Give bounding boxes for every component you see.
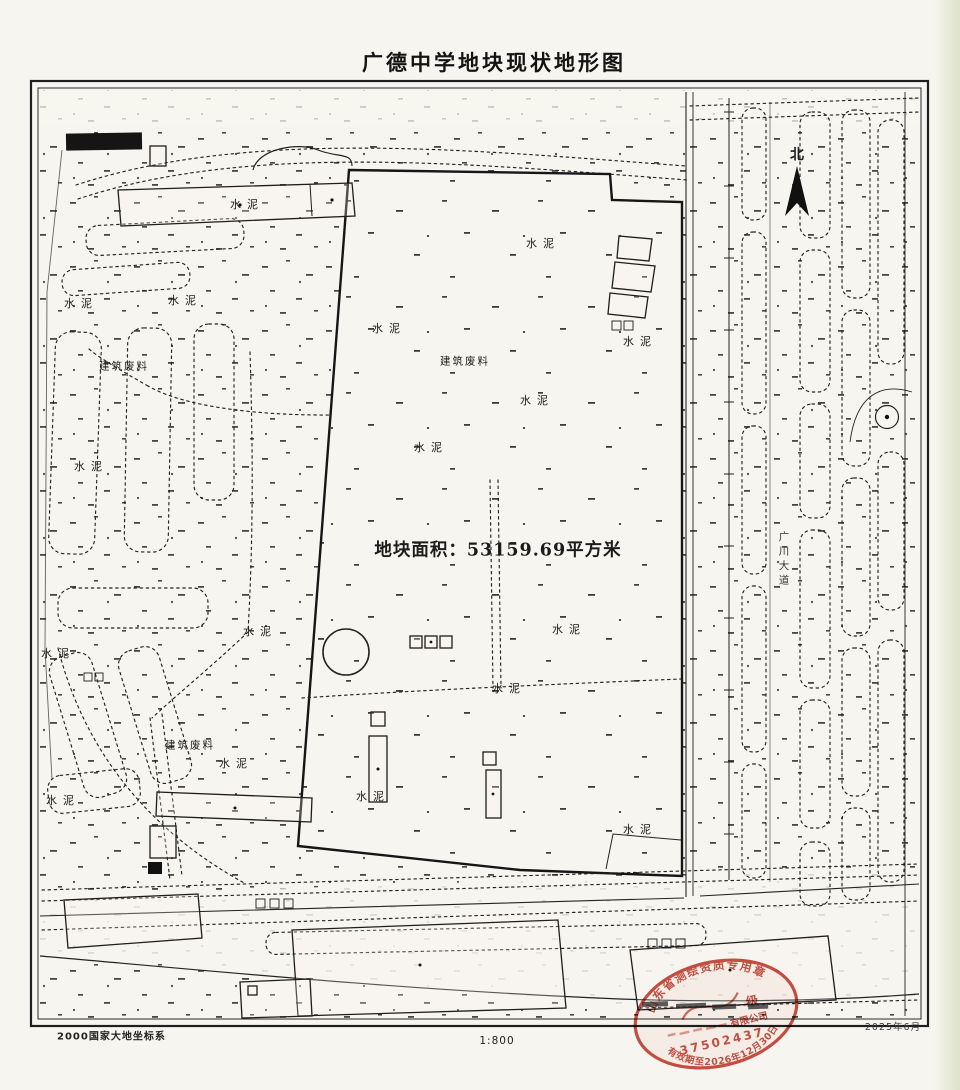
surface-label-cement: 水泥 <box>40 792 80 808</box>
surface-label-cement: 水泥 <box>514 392 554 408</box>
surface-label-cement: 水泥 <box>486 680 526 696</box>
topographic-map-sheet: 山东省测绘资质专用章 级 有限公司 37502437 有效期至2026年12月3… <box>0 0 960 1090</box>
surface-label-cement: 水泥 <box>237 623 277 639</box>
surface-label-cement: 水泥 <box>224 196 264 212</box>
surface-label-debris: 建筑废料 <box>440 354 490 369</box>
surface-label-cement: 水泥 <box>58 295 98 311</box>
map-title: 广德中学地块现状地形图 <box>362 47 626 77</box>
surface-label-cement: 水泥 <box>35 645 75 661</box>
filled-building <box>66 132 142 150</box>
surface-label-cement: 水泥 <box>366 320 406 336</box>
survey-date-label: 2025年6月 <box>865 1019 921 1033</box>
surface-label-cement: 水泥 <box>617 333 657 349</box>
scan-edge-artifact <box>934 0 960 1090</box>
surface-label-debris: 建筑废料 <box>165 738 215 753</box>
coordinate-system-label: 2000国家大地坐标系 <box>57 1028 166 1043</box>
surface-label-cement: 水泥 <box>520 235 560 251</box>
north-label: 北 <box>790 144 804 164</box>
surface-label-cement: 水泥 <box>68 458 108 474</box>
surface-label-cement: 水泥 <box>546 621 586 637</box>
surface-label-cement: 水泥 <box>213 755 253 771</box>
surface-label-cement: 水泥 <box>350 788 390 804</box>
surface-label-debris: 建筑废料 <box>99 359 149 374</box>
surface-label-cement: 水泥 <box>617 821 657 837</box>
road-label-guangchuan-avenue: 广川大道 <box>777 531 792 589</box>
surface-label-cement: 水泥 <box>162 292 202 308</box>
scale-label: 1:800 <box>479 1035 514 1047</box>
parcel-area-label: 地块面积：53159.69平方米 <box>374 537 621 562</box>
surface-label-cement: 水泥 <box>408 439 448 455</box>
